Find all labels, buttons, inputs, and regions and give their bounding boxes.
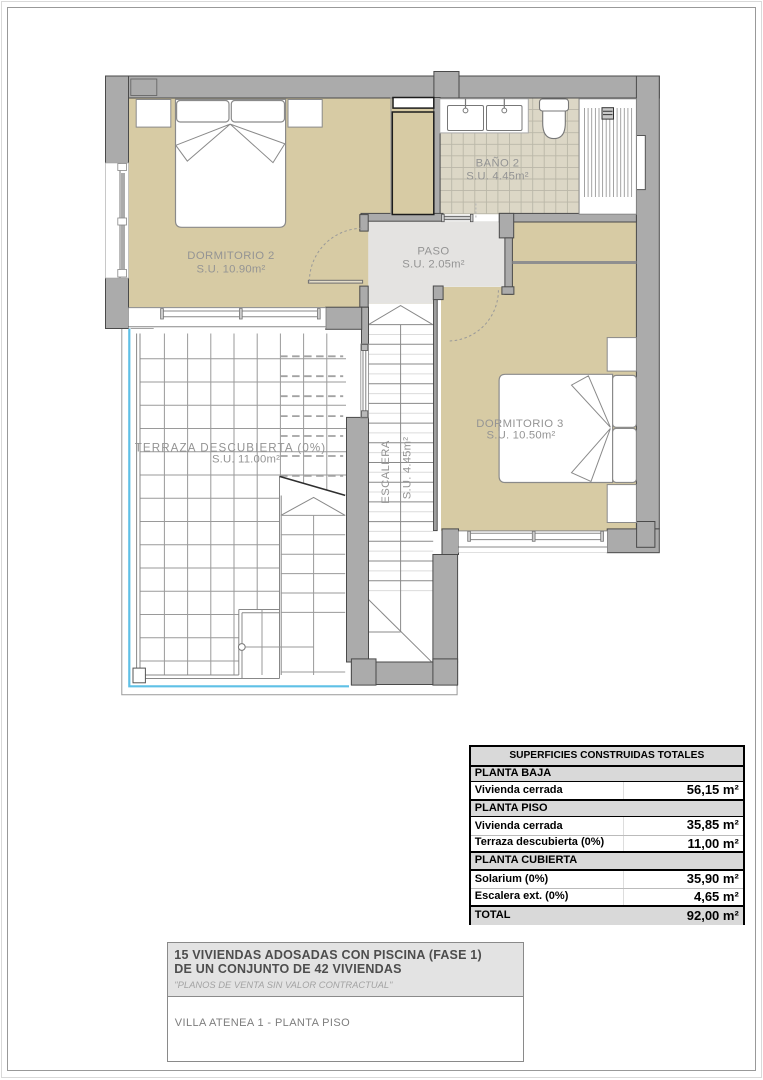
svg-text:S.U. 4.45m²: S.U. 4.45m² bbox=[466, 171, 529, 183]
svg-text:DORMITORIO 2: DORMITORIO 2 bbox=[187, 250, 274, 262]
svg-text:BAÑO 2: BAÑO 2 bbox=[476, 157, 520, 170]
svg-text:TERRAZA DESCUBIERTA (0%): TERRAZA DESCUBIERTA (0%) bbox=[135, 442, 327, 455]
svg-text:S.U. 2.05m²: S.U. 2.05m² bbox=[402, 259, 465, 271]
svg-text:ESCALERA: ESCALERA bbox=[380, 440, 392, 504]
svg-text:PASO: PASO bbox=[417, 246, 449, 258]
svg-text:S.U. 11.00m²: S.U. 11.00m² bbox=[212, 454, 280, 466]
svg-text:DORMITORIO 3: DORMITORIO 3 bbox=[476, 418, 563, 430]
svg-text:S.U. 4.45m²: S.U. 4.45m² bbox=[402, 437, 414, 500]
svg-text:S.U. 10.50m²: S.U. 10.50m² bbox=[487, 430, 556, 442]
svg-text:S.U. 10.90m²: S.U. 10.90m² bbox=[197, 263, 266, 275]
